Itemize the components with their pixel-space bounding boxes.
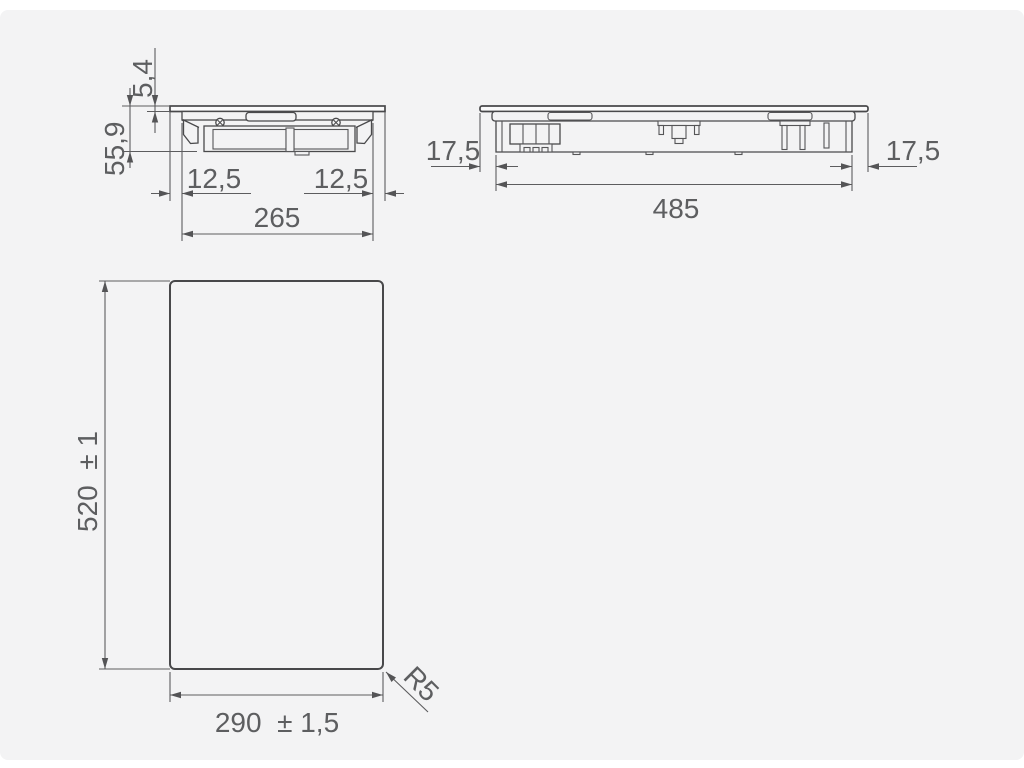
length-section-view: 17,5 17,5 485 [426, 106, 941, 224]
band-recess-left [548, 113, 592, 121]
dimension-corner-radius: R5 [386, 660, 445, 712]
width-section-view: 5,4 55,9 12,5 12,5 265 [99, 48, 404, 241]
dim-label-right-overhang-length: 17,5 [886, 135, 941, 166]
center-bracket [658, 121, 700, 144]
dimension-body-length: 485 [496, 181, 852, 224]
technical-drawing: 5,4 55,9 12,5 12,5 265 [0, 0, 1024, 768]
terminal-block [510, 124, 560, 152]
glass-plate-width [170, 106, 385, 112]
left-clip [184, 120, 199, 144]
dimension-glass-thickness: 5,4 [127, 48, 158, 133]
dimension-overall-height: 55,9 [99, 88, 133, 176]
dim-label-cutout-depth: 520 ± 1 [72, 431, 103, 532]
right-bracket [780, 121, 829, 150]
dimension-cutout-width: 290 ± 1,5 [170, 692, 383, 738]
dimension-left-overhang: 12,5 [151, 163, 251, 197]
band-recess-right [768, 113, 812, 121]
dim-label-left-overhang: 12,5 [187, 163, 242, 194]
dimension-cutout-depth: 520 ± 1 [72, 281, 108, 669]
dimension-right-overhang: 12,5 [304, 163, 404, 197]
dim-label-corner-radius: R5 [398, 660, 445, 707]
glass-plate-length [480, 106, 868, 112]
dim-label-left-overhang-length: 17,5 [426, 135, 481, 166]
right-clip [357, 120, 372, 144]
dim-label-glass-thickness: 5,4 [127, 59, 158, 98]
dim-label-overall-height: 55,9 [99, 122, 130, 177]
dim-label-body-length: 485 [653, 193, 700, 224]
bottom-foot [295, 152, 309, 156]
dim-label-right-overhang: 12,5 [314, 163, 369, 194]
dim-label-cutout-width: 290 ± 1,5 [215, 707, 339, 738]
flange-center-tab [246, 113, 296, 122]
dimension-body-width: 265 [182, 202, 373, 237]
cutout-rectangle [170, 281, 383, 669]
cutout-view: 520 ± 1 290 ± 1,5 R5 [72, 281, 445, 738]
dim-label-body-width: 265 [254, 202, 301, 233]
